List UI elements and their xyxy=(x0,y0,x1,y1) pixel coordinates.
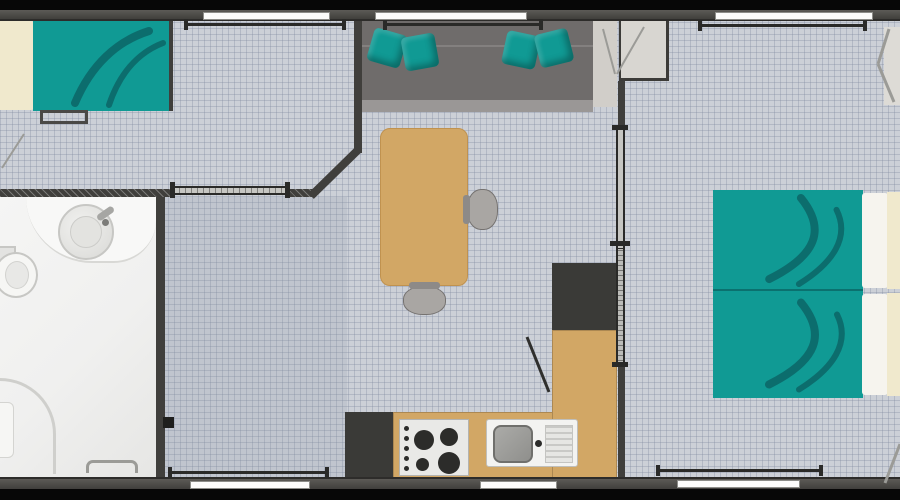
chair-backrest xyxy=(409,282,440,289)
cooktop-knob xyxy=(404,436,409,441)
sofa-front-edge xyxy=(362,100,593,112)
window xyxy=(375,12,527,20)
double-bed xyxy=(33,21,171,111)
single-bed-bottom xyxy=(713,291,863,398)
wall-stub xyxy=(288,189,316,197)
wall-bathroom-right xyxy=(156,197,165,478)
entry-door-window xyxy=(190,481,310,489)
sink-drainboard xyxy=(545,425,573,463)
single-bed-pillow xyxy=(887,293,900,396)
bathroom-door-pivot xyxy=(163,417,174,428)
frame-bar-top xyxy=(0,0,900,10)
burner xyxy=(440,428,458,446)
wall-bedroom-left xyxy=(354,21,362,153)
sliding-door-bracket xyxy=(610,241,630,246)
window xyxy=(715,12,873,20)
chair xyxy=(467,189,498,230)
curtain-rail xyxy=(658,469,821,472)
kitchen-sink xyxy=(486,419,578,467)
curtain-rail xyxy=(186,23,344,26)
chair-backrest xyxy=(463,195,470,224)
window xyxy=(480,481,557,489)
shower-handle xyxy=(86,460,138,473)
fridge xyxy=(345,412,393,478)
bathroom xyxy=(0,197,156,477)
tall-appliance xyxy=(552,263,617,330)
bed-headboard xyxy=(169,21,173,111)
burner xyxy=(438,452,460,474)
curtain-rail xyxy=(700,24,865,27)
toilet-bowl xyxy=(5,261,29,289)
washbasin-bowl xyxy=(70,216,102,248)
bed-sheet xyxy=(862,294,888,395)
faucet-knob xyxy=(102,219,109,226)
bed-cover-pattern xyxy=(713,291,863,398)
wall-bedroom-right-bottom xyxy=(618,362,625,477)
cooktop-knob xyxy=(404,466,409,471)
burner xyxy=(416,458,429,471)
window xyxy=(677,480,800,488)
shower-seat xyxy=(0,402,14,458)
frame-bar-bottom xyxy=(0,489,900,500)
bedroom-bench xyxy=(40,110,88,124)
sliding-door-bedroom-left xyxy=(171,186,289,195)
curtain-rail xyxy=(170,471,327,474)
cooktop xyxy=(399,419,469,476)
sofa-cushion xyxy=(400,32,439,71)
wall-bathroom-top xyxy=(0,189,172,197)
sliding-door-bedroom-right xyxy=(616,126,625,366)
corridor-floor xyxy=(165,197,347,477)
bed-sheet xyxy=(862,193,888,288)
wall-bedroom-right-top xyxy=(618,81,625,128)
cooktop-knob xyxy=(404,426,409,431)
cabinet-panel xyxy=(593,21,617,107)
sink-basin xyxy=(493,425,533,463)
bed-cover-pattern xyxy=(33,21,171,111)
cooktop-knob xyxy=(404,456,409,461)
floor-plan xyxy=(0,0,900,500)
window xyxy=(203,12,330,20)
single-bed-pillow xyxy=(887,192,900,289)
single-bed-top xyxy=(713,190,863,291)
bed-cover-pattern xyxy=(713,190,863,289)
dining-table xyxy=(380,128,468,286)
chair xyxy=(403,286,446,315)
sliding-door-leaf xyxy=(618,248,623,366)
double-bed-pillow xyxy=(0,21,34,110)
curtain-rail xyxy=(385,23,541,26)
cooktop-knob xyxy=(404,446,409,451)
burner xyxy=(414,430,434,450)
wardrobe xyxy=(619,14,669,81)
sink-faucet xyxy=(535,440,542,447)
corner-unit xyxy=(884,27,900,105)
